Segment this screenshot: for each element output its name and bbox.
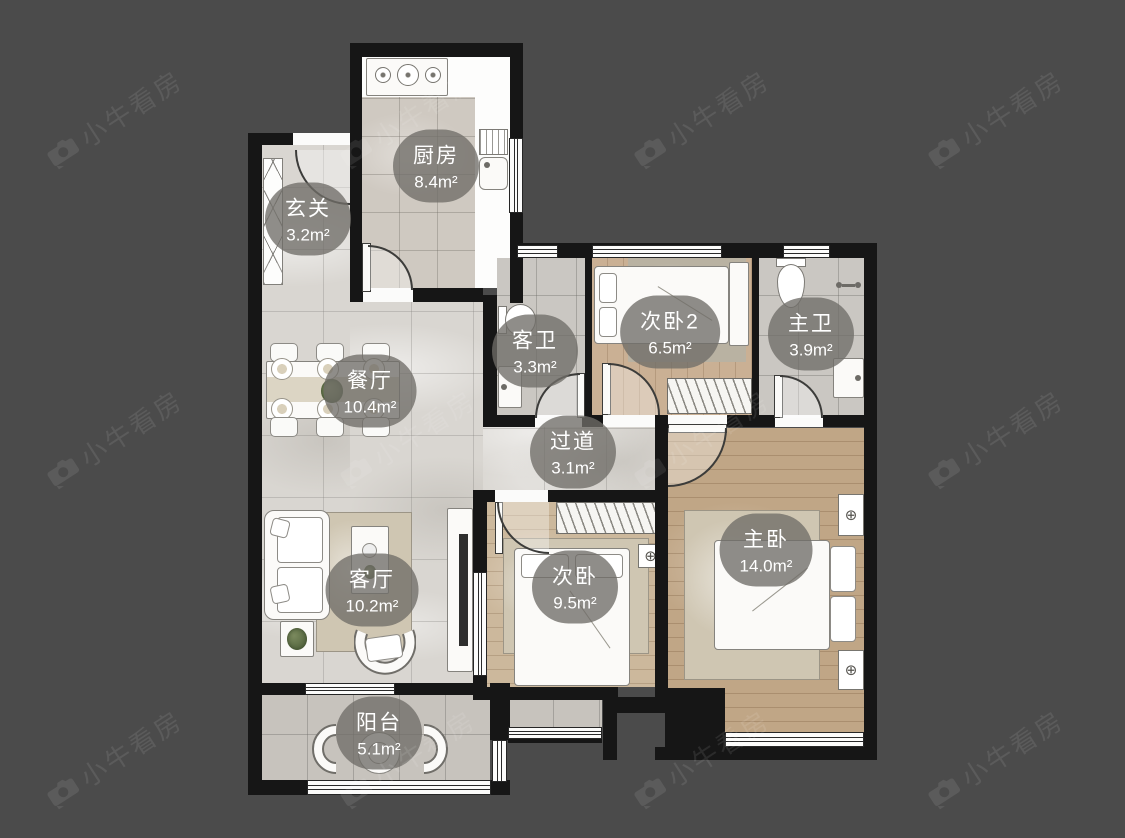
wall bbox=[491, 780, 510, 795]
wall bbox=[603, 697, 617, 760]
door-opening bbox=[495, 490, 548, 502]
ac-unit-icon: ⊕ bbox=[838, 650, 864, 690]
bedroom-wardrobe bbox=[556, 502, 662, 534]
room-name: 客卫 bbox=[512, 325, 558, 355]
watermark-text: 小牛看房 bbox=[953, 381, 1070, 475]
room-label-dining: 餐厅 10.4m² bbox=[324, 355, 417, 428]
room-name: 次卧2 bbox=[640, 306, 700, 336]
wall bbox=[248, 133, 262, 695]
room-area: 10.4m² bbox=[344, 398, 397, 418]
wall bbox=[508, 739, 602, 743]
watermark-camera-icon bbox=[43, 453, 82, 491]
window bbox=[592, 245, 722, 258]
floor-plan: ⊕ ⊕ ⊕ bbox=[0, 0, 1125, 838]
room-label-master-bedroom: 主卧 14.0m² bbox=[720, 514, 813, 587]
window bbox=[492, 740, 507, 782]
watermark: 小牛看房 bbox=[40, 61, 189, 176]
wall bbox=[350, 43, 523, 57]
watermark-camera-icon bbox=[924, 773, 963, 811]
watermark-text: 小牛看房 bbox=[72, 61, 189, 155]
balcony-railing-window bbox=[307, 780, 491, 795]
wall bbox=[473, 687, 618, 700]
wall bbox=[510, 213, 523, 303]
wall bbox=[248, 683, 262, 783]
watermark: 小牛看房 bbox=[921, 61, 1070, 176]
ac-unit-icon: ⊕ bbox=[838, 494, 864, 536]
watermark: 小牛看房 bbox=[921, 381, 1070, 496]
room-area: 3.9m² bbox=[788, 341, 834, 361]
room-area: 3.2m² bbox=[285, 226, 331, 246]
balcony-sliding-door bbox=[305, 683, 395, 695]
window bbox=[473, 572, 487, 676]
watermark-text: 小牛看房 bbox=[953, 61, 1070, 155]
room-label-hallway: 过道 3.1m² bbox=[530, 416, 616, 489]
room-area: 3.3m² bbox=[512, 358, 558, 378]
bedroom2-cabinet bbox=[729, 262, 749, 346]
master-pillow bbox=[830, 546, 856, 592]
room-area: 14.0m² bbox=[740, 557, 793, 577]
room-name: 次卧 bbox=[552, 561, 598, 591]
watermark-text: 小牛看房 bbox=[72, 701, 189, 795]
watermark: 小牛看房 bbox=[40, 701, 189, 816]
room-label-entry: 玄关 3.2m² bbox=[265, 183, 351, 256]
watermark-camera-icon bbox=[43, 133, 82, 171]
stove bbox=[366, 58, 448, 96]
room-area: 9.5m² bbox=[552, 594, 598, 614]
plate bbox=[271, 358, 293, 380]
wall bbox=[655, 415, 668, 700]
room-area: 8.4m² bbox=[413, 173, 459, 193]
window bbox=[509, 138, 523, 213]
entry-door-opening bbox=[293, 133, 350, 145]
watermark-camera-icon bbox=[924, 133, 963, 171]
room-area: 5.1m² bbox=[356, 740, 402, 760]
room-name: 餐厅 bbox=[344, 365, 397, 395]
watermark-camera-icon bbox=[630, 773, 669, 811]
room-area: 6.5m² bbox=[640, 339, 700, 359]
room-label-bedroom-2: 次卧2 6.5m² bbox=[620, 296, 720, 369]
room-label-bedroom: 次卧 9.5m² bbox=[532, 551, 618, 624]
kitchen-drainboard bbox=[479, 129, 508, 155]
master-pillow bbox=[830, 596, 856, 642]
watermark-camera-icon bbox=[924, 453, 963, 491]
watermark: 小牛看房 bbox=[627, 61, 776, 176]
room-name: 客厅 bbox=[346, 564, 399, 594]
door-opening bbox=[603, 415, 660, 427]
wall bbox=[473, 490, 495, 502]
wall bbox=[413, 288, 483, 302]
wall bbox=[752, 258, 759, 415]
room-name: 过道 bbox=[550, 426, 596, 456]
sofa bbox=[264, 510, 330, 620]
bedroom2-wardrobe bbox=[667, 378, 752, 414]
window bbox=[783, 245, 830, 258]
dining-chair bbox=[270, 417, 298, 437]
room-label-master-bath: 主卫 3.9m² bbox=[768, 298, 854, 371]
room-name: 主卫 bbox=[788, 308, 834, 338]
watermark: 小牛看房 bbox=[921, 701, 1070, 816]
tv bbox=[459, 534, 468, 646]
watermark-text: 小牛看房 bbox=[72, 381, 189, 475]
floor-bay bbox=[508, 700, 602, 727]
watermark-camera-icon bbox=[630, 133, 669, 171]
room-area: 10.2m² bbox=[346, 597, 399, 617]
wall bbox=[585, 258, 592, 415]
lounge-pillow bbox=[365, 634, 404, 663]
watermark: 小牛看房 bbox=[40, 381, 189, 496]
watermark-camera-icon bbox=[43, 773, 82, 811]
watermark-text: 小牛看房 bbox=[953, 701, 1070, 795]
room-name: 主卧 bbox=[740, 524, 793, 554]
room-name: 阳台 bbox=[356, 707, 402, 737]
wall bbox=[350, 43, 362, 300]
room-label-living: 客厅 10.2m² bbox=[326, 554, 419, 627]
shower-set bbox=[836, 276, 862, 296]
wall bbox=[395, 683, 475, 695]
wall bbox=[510, 57, 523, 138]
watermark-text: 小牛看房 bbox=[659, 61, 776, 155]
room-area: 3.1m² bbox=[550, 459, 596, 479]
wall bbox=[248, 780, 308, 795]
window bbox=[508, 727, 602, 739]
room-name: 玄关 bbox=[285, 193, 331, 223]
wall bbox=[655, 747, 864, 760]
wall bbox=[864, 243, 877, 760]
wall bbox=[548, 490, 668, 502]
kitchen-sink bbox=[479, 157, 508, 190]
window bbox=[725, 732, 864, 747]
window bbox=[517, 245, 558, 258]
side-table bbox=[280, 621, 314, 657]
wall bbox=[262, 683, 305, 695]
room-name: 厨房 bbox=[413, 140, 459, 170]
room-label-balcony: 阳台 5.1m² bbox=[336, 697, 422, 770]
room-label-kitchen: 厨房 8.4m² bbox=[393, 130, 479, 203]
room-label-guest-bath: 客卫 3.3m² bbox=[492, 315, 578, 388]
